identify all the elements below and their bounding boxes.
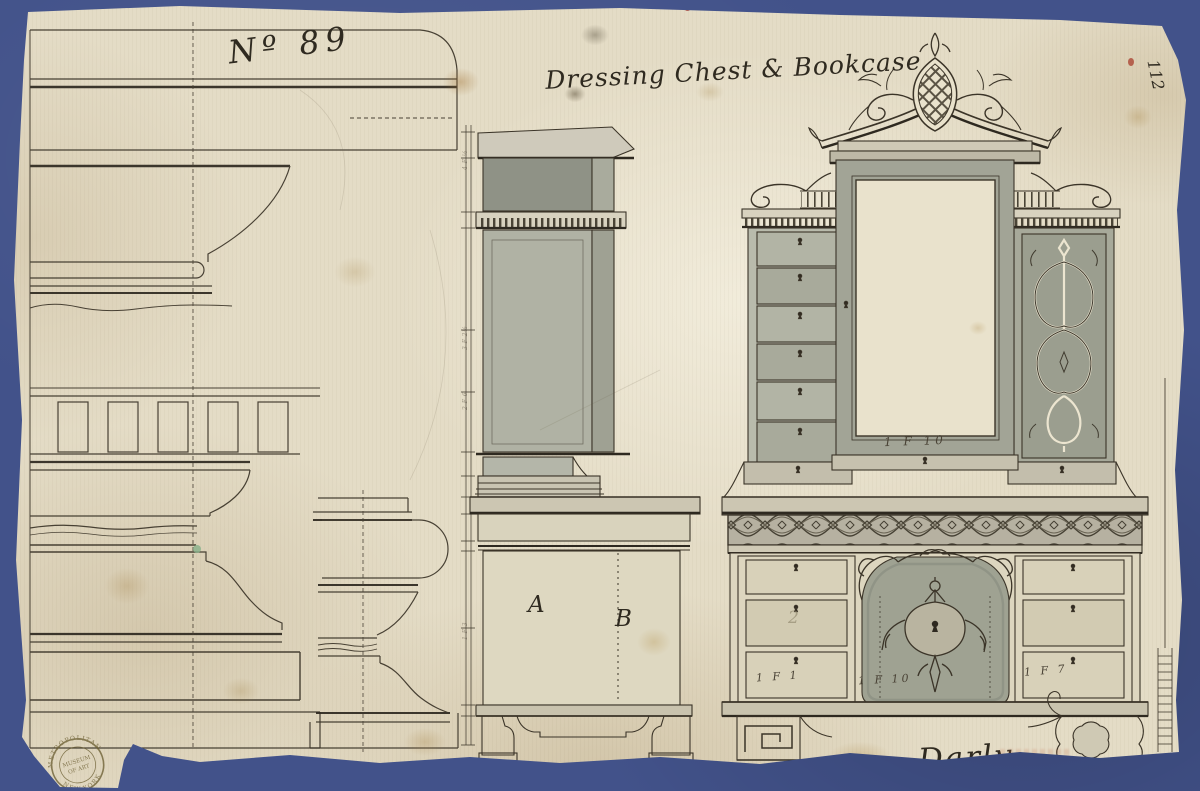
artist-signature: Darly xyxy=(917,738,1014,779)
letter-b: B xyxy=(615,606,632,632)
scale-mark: 4 F ½ xyxy=(462,150,469,170)
letter-a: A xyxy=(528,592,545,618)
furniture-drawing xyxy=(0,0,1200,791)
scale-mark: 3 F 2½ xyxy=(462,326,469,350)
fret-foot-left xyxy=(737,716,832,760)
right-wing xyxy=(1008,173,1136,497)
scale-mark: 2 F 6 xyxy=(462,392,469,410)
right-drawer-bank xyxy=(1015,556,1132,702)
photograph-backdrop: Nº 89 Dressing Chest & Bookcase A B 1 F … xyxy=(0,0,1200,791)
scale-mark: 1 F 3 xyxy=(462,622,469,640)
pencil-number: 2 xyxy=(788,608,799,628)
paper-sheet: Nº 89 Dressing Chest & Bookcase A B 1 F … xyxy=(0,0,1200,791)
side-elevation xyxy=(461,125,700,761)
scale-ladder xyxy=(1158,378,1172,752)
dim-under-mirror: 1 F 10 xyxy=(884,433,947,449)
faint-accession-mark xyxy=(1068,760,1168,767)
mirror-door xyxy=(836,160,1014,455)
left-molding-profiles xyxy=(30,22,457,750)
left-wing xyxy=(724,173,852,497)
front-elevation xyxy=(722,33,1172,766)
red-speck xyxy=(684,4,691,11)
small-plinth-profile xyxy=(310,490,458,752)
